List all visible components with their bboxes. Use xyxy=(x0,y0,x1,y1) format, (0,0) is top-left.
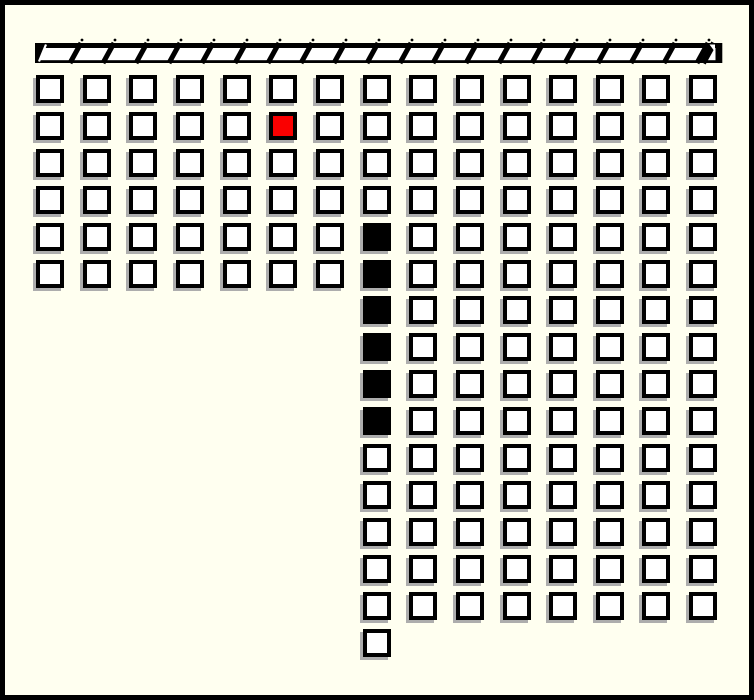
cell-r1-c9[interactable] xyxy=(409,75,437,103)
cell-r10-c14[interactable] xyxy=(642,407,670,435)
cell-r8-c13[interactable] xyxy=(596,333,624,361)
board-window xyxy=(0,0,754,700)
cell-r6-c1[interactable] xyxy=(36,260,64,288)
cell-r13-c15[interactable] xyxy=(689,518,717,546)
cell-r6-c12[interactable] xyxy=(549,260,577,288)
cell-r1-c14[interactable] xyxy=(642,75,670,103)
cell-r7-c12[interactable] xyxy=(549,296,577,324)
cell-r10-c12[interactable] xyxy=(549,407,577,435)
cell-r12-c15[interactable] xyxy=(689,481,717,509)
cell-r10-c15[interactable] xyxy=(689,407,717,435)
cell-r4-c3[interactable] xyxy=(129,186,157,214)
cell-r7-c14[interactable] xyxy=(642,296,670,324)
cell-r13-c8[interactable] xyxy=(363,518,391,546)
cell-r5-c13[interactable] xyxy=(596,223,624,251)
cell-r8-c8[interactable] xyxy=(363,333,391,361)
cell-r8-c10[interactable] xyxy=(456,333,484,361)
cell-r4-c8[interactable] xyxy=(363,186,391,214)
cell-r6-c11[interactable] xyxy=(503,260,531,288)
cell-r14-c10[interactable] xyxy=(456,555,484,583)
cell-r2-c12[interactable] xyxy=(549,112,577,140)
cell-r15-c14[interactable] xyxy=(642,592,670,620)
cell-r4-c9[interactable] xyxy=(409,186,437,214)
cell-r5-c1[interactable] xyxy=(36,223,64,251)
cell-r4-c11[interactable] xyxy=(503,186,531,214)
cell-r3-c12[interactable] xyxy=(549,149,577,177)
cell-r10-c9[interactable] xyxy=(409,407,437,435)
cell-r11-c12[interactable] xyxy=(549,444,577,472)
cell-r3-c7[interactable] xyxy=(316,149,344,177)
cell-r4-c14[interactable] xyxy=(642,186,670,214)
cell-r16-c8[interactable] xyxy=(363,629,391,657)
cell-r5-c5[interactable] xyxy=(223,223,251,251)
cell-r3-c2[interactable] xyxy=(83,149,111,177)
cell-r7-c13[interactable] xyxy=(596,296,624,324)
cell-r1-c8[interactable] xyxy=(363,75,391,103)
cell-r5-c10[interactable] xyxy=(456,223,484,251)
cell-r1-c3[interactable] xyxy=(129,75,157,103)
cell-r2-c4[interactable] xyxy=(176,112,204,140)
cell-r5-c3[interactable] xyxy=(129,223,157,251)
cell-r11-c13[interactable] xyxy=(596,444,624,472)
cell-r5-c12[interactable] xyxy=(549,223,577,251)
cell-r2-c10[interactable] xyxy=(456,112,484,140)
cell-r12-c13[interactable] xyxy=(596,481,624,509)
cell-r1-c12[interactable] xyxy=(549,75,577,103)
cell-r12-c14[interactable] xyxy=(642,481,670,509)
cell-r6-c13[interactable] xyxy=(596,260,624,288)
cell-r2-c7[interactable] xyxy=(316,112,344,140)
cell-r9-c11[interactable] xyxy=(503,370,531,398)
cell-r1-c4[interactable] xyxy=(176,75,204,103)
cell-r3-c8[interactable] xyxy=(363,149,391,177)
cell-r1-c11[interactable] xyxy=(503,75,531,103)
cell-r8-c15[interactable] xyxy=(689,333,717,361)
cell-r15-c13[interactable] xyxy=(596,592,624,620)
cell-r8-c9[interactable] xyxy=(409,333,437,361)
cell-r4-c13[interactable] xyxy=(596,186,624,214)
cell-r11-c8[interactable] xyxy=(363,444,391,472)
cell-r2-c11[interactable] xyxy=(503,112,531,140)
cell-r8-c12[interactable] xyxy=(549,333,577,361)
cell-r3-c10[interactable] xyxy=(456,149,484,177)
cell-r15-c11[interactable] xyxy=(503,592,531,620)
cell-r1-c1[interactable] xyxy=(36,75,64,103)
cell-r15-c12[interactable] xyxy=(549,592,577,620)
cell-r13-c13[interactable] xyxy=(596,518,624,546)
cell-r9-c14[interactable] xyxy=(642,370,670,398)
cell-r6-c14[interactable] xyxy=(642,260,670,288)
cell-r12-c9[interactable] xyxy=(409,481,437,509)
cell-r12-c12[interactable] xyxy=(549,481,577,509)
cell-r5-c8[interactable] xyxy=(363,223,391,251)
cell-r13-c9[interactable] xyxy=(409,518,437,546)
cell-r13-c14[interactable] xyxy=(642,518,670,546)
cell-r2-c14[interactable] xyxy=(642,112,670,140)
cell-r1-c7[interactable] xyxy=(316,75,344,103)
cell-r5-c7[interactable] xyxy=(316,223,344,251)
cell-r10-c11[interactable] xyxy=(503,407,531,435)
cell-r10-c13[interactable] xyxy=(596,407,624,435)
cell-r5-c9[interactable] xyxy=(409,223,437,251)
cell-r4-c10[interactable] xyxy=(456,186,484,214)
cell-r6-c5[interactable] xyxy=(223,260,251,288)
cell-r14-c14[interactable] xyxy=(642,555,670,583)
cell-r15-c10[interactable] xyxy=(456,592,484,620)
cell-r5-c14[interactable] xyxy=(642,223,670,251)
cell-r6-c9[interactable] xyxy=(409,260,437,288)
cell-r3-c11[interactable] xyxy=(503,149,531,177)
cell-r13-c12[interactable] xyxy=(549,518,577,546)
cell-r14-c13[interactable] xyxy=(596,555,624,583)
cell-r1-c6[interactable] xyxy=(269,75,297,103)
cell-r5-c15[interactable] xyxy=(689,223,717,251)
cell-r11-c10[interactable] xyxy=(456,444,484,472)
cell-r5-c11[interactable] xyxy=(503,223,531,251)
cell-r9-c10[interactable] xyxy=(456,370,484,398)
cell-r4-c1[interactable] xyxy=(36,186,64,214)
cell-r13-c10[interactable] xyxy=(456,518,484,546)
cell-r13-c11[interactable] xyxy=(503,518,531,546)
cell-r11-c11[interactable] xyxy=(503,444,531,472)
cell-r3-c1[interactable] xyxy=(36,149,64,177)
cell-r6-c4[interactable] xyxy=(176,260,204,288)
cell-r3-c3[interactable] xyxy=(129,149,157,177)
cell-r7-c10[interactable] xyxy=(456,296,484,324)
cell-r8-c11[interactable] xyxy=(503,333,531,361)
cell-r5-c6[interactable] xyxy=(269,223,297,251)
cell-r3-c6[interactable] xyxy=(269,149,297,177)
cell-r4-c6[interactable] xyxy=(269,186,297,214)
cell-r14-c15[interactable] xyxy=(689,555,717,583)
cell-r1-c2[interactable] xyxy=(83,75,111,103)
cell-r3-c15[interactable] xyxy=(689,149,717,177)
cell-r6-c10[interactable] xyxy=(456,260,484,288)
cell-r5-c2[interactable] xyxy=(83,223,111,251)
cell-r9-c15[interactable] xyxy=(689,370,717,398)
cell-r7-c11[interactable] xyxy=(503,296,531,324)
cell-r2-c9[interactable] xyxy=(409,112,437,140)
cell-r12-c8[interactable] xyxy=(363,481,391,509)
cell-r2-c8[interactable] xyxy=(363,112,391,140)
cell-r11-c9[interactable] xyxy=(409,444,437,472)
cell-r4-c7[interactable] xyxy=(316,186,344,214)
cell-r4-c12[interactable] xyxy=(549,186,577,214)
cell-r14-c8[interactable] xyxy=(363,555,391,583)
cell-r15-c8[interactable] xyxy=(363,592,391,620)
cell-r7-c8[interactable] xyxy=(363,296,391,324)
cell-r11-c14[interactable] xyxy=(642,444,670,472)
cell-r3-c4[interactable] xyxy=(176,149,204,177)
cell-r9-c9[interactable] xyxy=(409,370,437,398)
cell-r6-c7[interactable] xyxy=(316,260,344,288)
cell-r3-c5[interactable] xyxy=(223,149,251,177)
cell-r14-c12[interactable] xyxy=(549,555,577,583)
cell-r14-c9[interactable] xyxy=(409,555,437,583)
cell-r6-c8[interactable] xyxy=(363,260,391,288)
cell-r10-c8[interactable] xyxy=(363,407,391,435)
cell-r10-c10[interactable] xyxy=(456,407,484,435)
game-board xyxy=(5,5,749,695)
cell-r12-c11[interactable] xyxy=(503,481,531,509)
cell-r2-c6[interactable] xyxy=(269,112,297,140)
cell-r9-c8[interactable] xyxy=(363,370,391,398)
cell-r1-c13[interactable] xyxy=(596,75,624,103)
cell-r4-c15[interactable] xyxy=(689,186,717,214)
cell-r1-c15[interactable] xyxy=(689,75,717,103)
cell-r9-c13[interactable] xyxy=(596,370,624,398)
cell-r14-c11[interactable] xyxy=(503,555,531,583)
cell-r15-c9[interactable] xyxy=(409,592,437,620)
cell-r7-c15[interactable] xyxy=(689,296,717,324)
cell-r2-c13[interactable] xyxy=(596,112,624,140)
cell-r2-c1[interactable] xyxy=(36,112,64,140)
cell-r6-c6[interactable] xyxy=(269,260,297,288)
cell-r6-c15[interactable] xyxy=(689,260,717,288)
cell-r2-c5[interactable] xyxy=(223,112,251,140)
cell-r12-c10[interactable] xyxy=(456,481,484,509)
cell-r4-c5[interactable] xyxy=(223,186,251,214)
cell-r7-c9[interactable] xyxy=(409,296,437,324)
cell-r1-c5[interactable] xyxy=(223,75,251,103)
cell-r2-c3[interactable] xyxy=(129,112,157,140)
cell-r9-c12[interactable] xyxy=(549,370,577,398)
cell-r2-c15[interactable] xyxy=(689,112,717,140)
cell-r4-c4[interactable] xyxy=(176,186,204,214)
cell-r2-c2[interactable] xyxy=(83,112,111,140)
cell-r1-c10[interactable] xyxy=(456,75,484,103)
cell-r6-c3[interactable] xyxy=(129,260,157,288)
cell-r3-c9[interactable] xyxy=(409,149,437,177)
cell-r3-c14[interactable] xyxy=(642,149,670,177)
cell-r6-c2[interactable] xyxy=(83,260,111,288)
cell-r8-c14[interactable] xyxy=(642,333,670,361)
cell-r5-c4[interactable] xyxy=(176,223,204,251)
cell-r3-c13[interactable] xyxy=(596,149,624,177)
cell-r15-c15[interactable] xyxy=(689,592,717,620)
cell-r11-c15[interactable] xyxy=(689,444,717,472)
cell-r4-c2[interactable] xyxy=(83,186,111,214)
